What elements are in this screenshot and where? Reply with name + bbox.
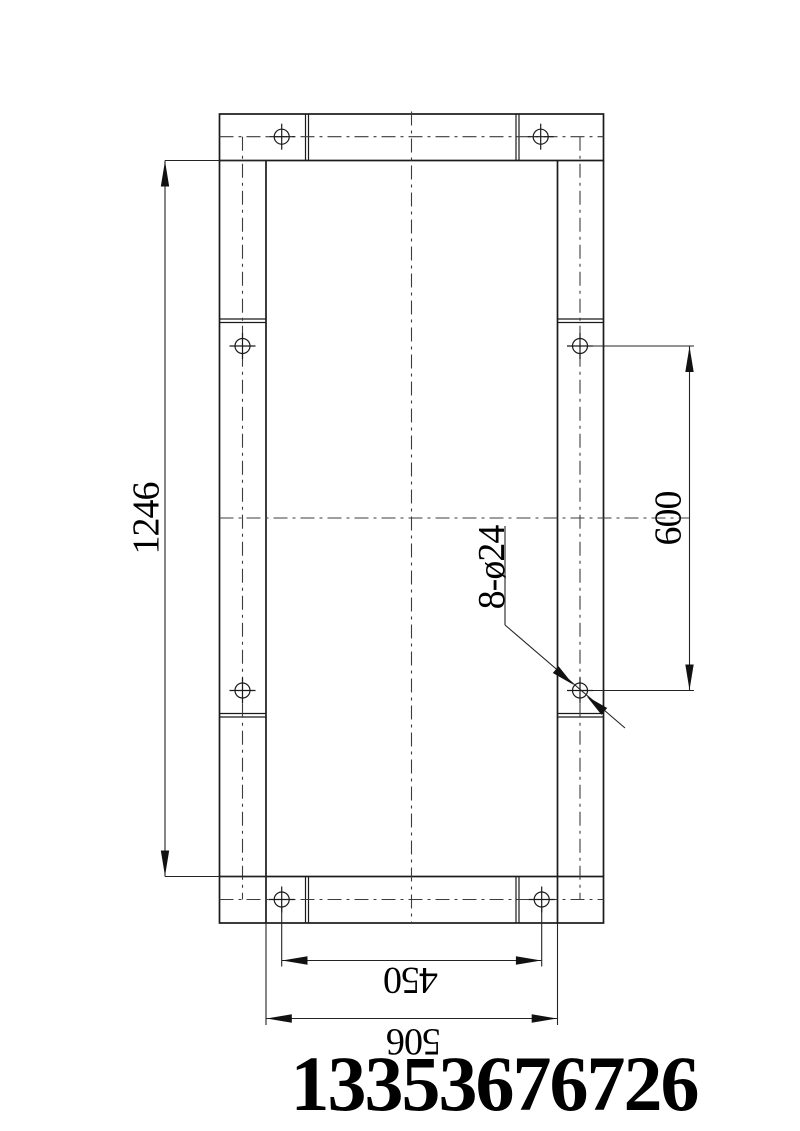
- dim-side-hole-spacing-label: 600: [648, 492, 690, 546]
- bolt-hole: [230, 333, 256, 359]
- drawing-page: 1246 600 450 506 8-ø24 13353676726: [0, 0, 800, 1131]
- dim-overall-height-label: 1246: [126, 483, 168, 555]
- bolt-hole: [230, 678, 256, 704]
- bolt-hole: [528, 124, 554, 150]
- arrowhead-left: [267, 1014, 292, 1022]
- arrowhead-right: [532, 1014, 557, 1022]
- arrowhead-down: [685, 665, 693, 691]
- arrowhead-left: [282, 956, 307, 964]
- phone-number: 13353676726: [291, 1040, 698, 1127]
- bolt-hole: [269, 124, 295, 150]
- arrowhead-up: [685, 347, 693, 373]
- dim-overall-height: 1246: [126, 161, 268, 877]
- hole-callout-leader: 8-ø24: [471, 525, 625, 728]
- dim-bottom-hole-spacing: 450: [282, 906, 542, 1001]
- technical-drawing-canvas: 1246 600 450 506 8-ø24 13353676726: [0, 0, 800, 1131]
- arrowhead-right: [516, 956, 541, 964]
- arrowhead-up: [161, 161, 169, 187]
- arrowhead-down: [161, 851, 169, 877]
- dim-bottom-hole-spacing-label: 450: [384, 959, 438, 1001]
- centerlines: [220, 112, 690, 924]
- hole-callout-label: 8-ø24: [471, 525, 513, 610]
